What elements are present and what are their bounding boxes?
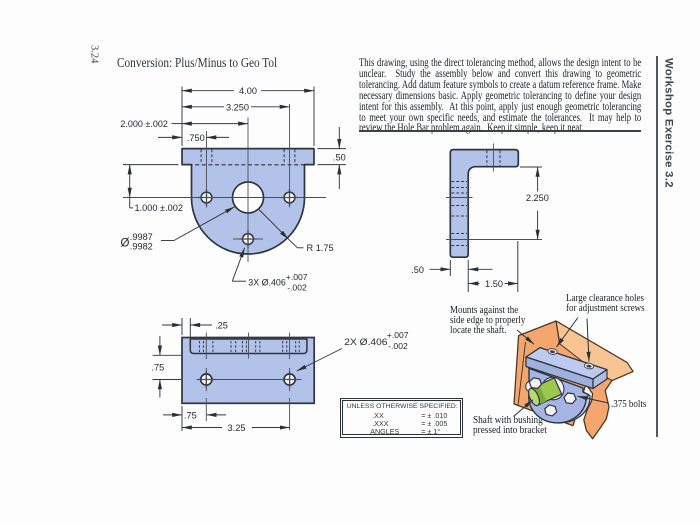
svg-text:+.007: +.007 [286, 272, 308, 282]
svg-text:.750: .750 [187, 133, 205, 143]
svg-text:1.50: 1.50 [485, 279, 503, 289]
svg-text:2.250: 2.250 [526, 193, 549, 203]
svg-text:.50: .50 [333, 153, 346, 163]
svg-text:3.250: 3.250 [226, 102, 249, 112]
svg-text:2X Ø.406: 2X Ø.406 [344, 337, 387, 347]
svg-text:Ø: Ø [121, 238, 130, 250]
svg-text:1.000 ±.002: 1.000 ±.002 [135, 203, 184, 213]
svg-text:4.00: 4.00 [239, 86, 257, 96]
svg-text:.75: .75 [184, 410, 197, 420]
svg-text:.75: .75 [151, 362, 164, 372]
svg-text:.50: .50 [411, 265, 424, 275]
svg-text:.9982: .9982 [130, 242, 153, 252]
svg-text:-.002: -.002 [388, 341, 408, 351]
svg-text:3X Ø.406: 3X Ø.406 [248, 277, 285, 287]
svg-text:+.007: +.007 [387, 330, 409, 340]
svg-text:3.25: 3.25 [228, 423, 246, 433]
svg-text:2.000 ±.002: 2.000 ±.002 [120, 119, 167, 129]
svg-text:R 1.75: R 1.75 [307, 243, 334, 253]
svg-text:-.002: -.002 [287, 282, 307, 292]
svg-text:.25: .25 [215, 320, 228, 330]
